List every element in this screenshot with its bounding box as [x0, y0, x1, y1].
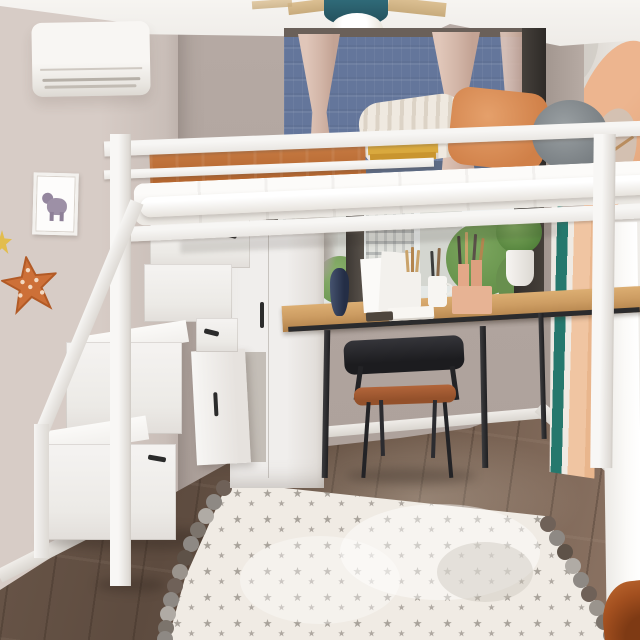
orange-star-decor — [0, 252, 62, 317]
ac-seam — [40, 67, 142, 71]
brush-mug — [428, 276, 447, 307]
pencil-case — [366, 311, 393, 321]
open-book — [388, 306, 435, 321]
elephant-wall-art — [32, 172, 79, 235]
cabinet-open-door — [191, 349, 251, 466]
pencil-cup — [404, 272, 421, 308]
door-handle — [213, 392, 218, 416]
topiary-pot — [506, 250, 534, 286]
bed-post-left — [110, 134, 131, 586]
room-photo — [0, 0, 640, 640]
drawer-handle — [204, 328, 220, 336]
handrail-post — [34, 424, 49, 558]
pencil — [411, 247, 414, 275]
drawer-handle — [148, 454, 167, 462]
cabinet-handle — [260, 302, 264, 328]
ac-vent — [42, 77, 140, 82]
air-conditioner — [31, 21, 150, 97]
navy-vase — [330, 268, 349, 316]
cabinet-door-seam — [268, 228, 269, 478]
ac-vent — [44, 84, 136, 89]
bed-post-right — [590, 134, 615, 468]
elephant-art-leg — [60, 212, 64, 221]
star-pattern-rug — [140, 460, 640, 640]
peach-organizer — [452, 286, 492, 314]
stair-drawer — [196, 318, 238, 352]
stair-drawer — [144, 264, 232, 322]
stair-drawer — [36, 444, 176, 540]
elephant-art-leg — [50, 212, 54, 221]
